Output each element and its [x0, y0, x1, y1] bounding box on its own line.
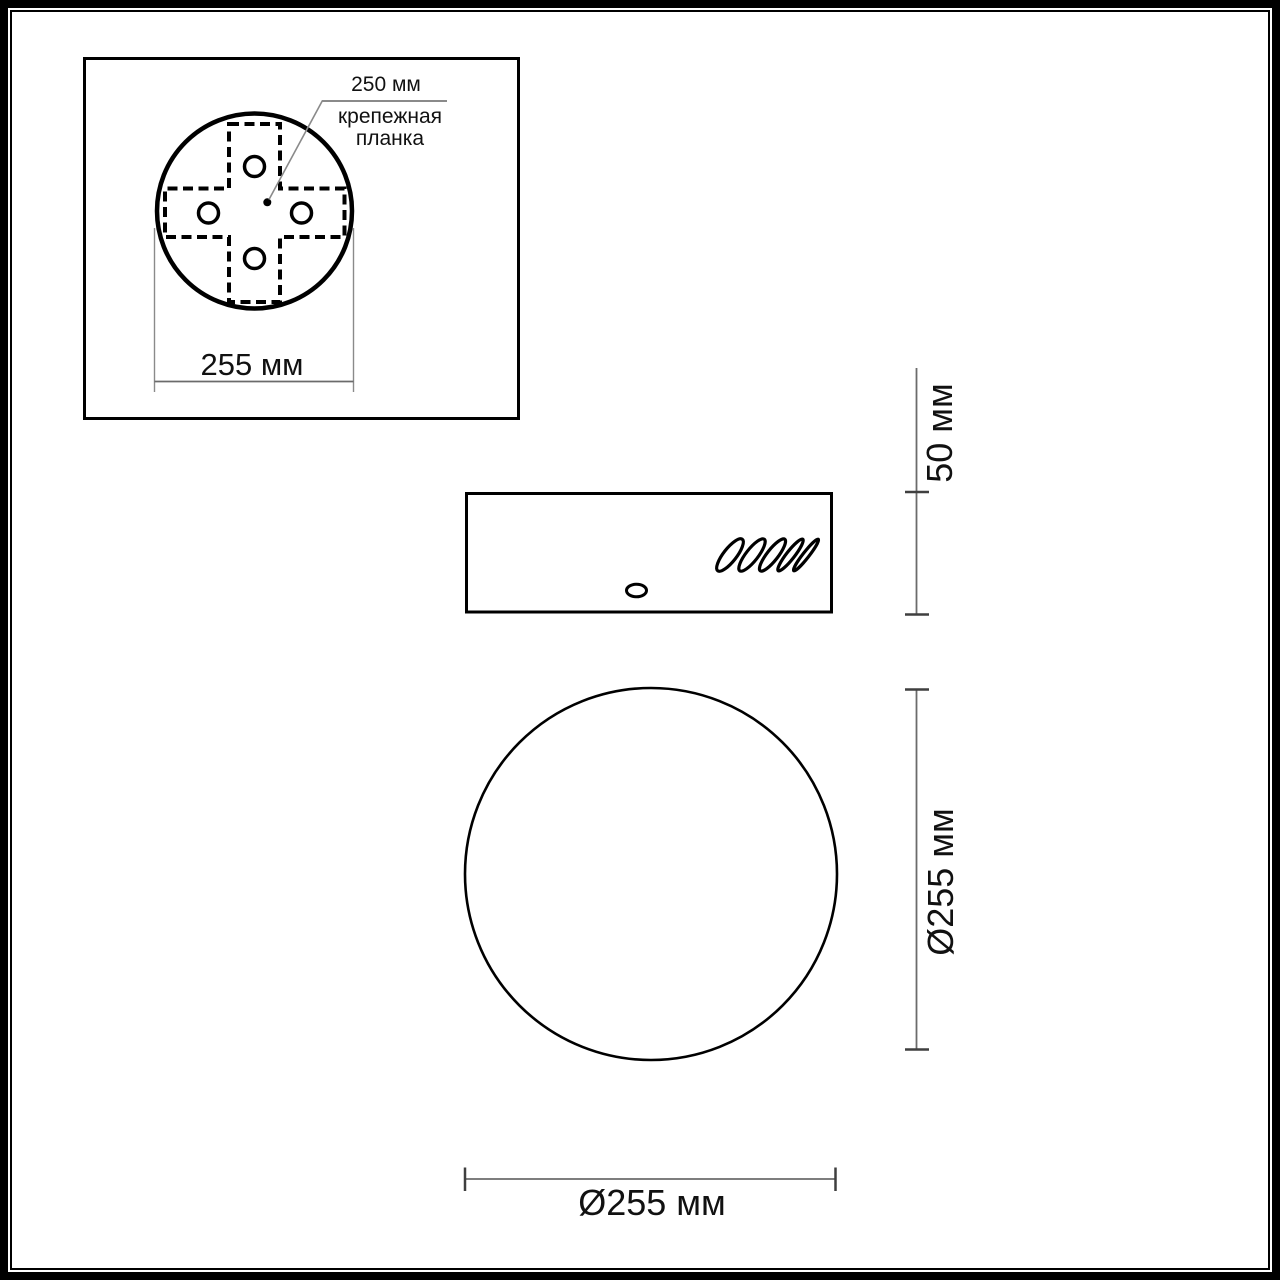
hole-pitch-label: 250 мм — [351, 74, 421, 96]
side-view-body — [467, 494, 832, 613]
detail-width-label: 255 мм — [201, 349, 304, 382]
technical-drawing-page: 250 мм крепежная планка 255 мм 50 мм Ø25… — [0, 0, 1280, 1280]
canopy-circle — [465, 688, 837, 1060]
front-view-group — [465, 688, 929, 1191]
diameter-label-horizontal: Ø255 мм — [578, 1184, 726, 1222]
bracket-label-line1: крепежная — [338, 106, 442, 128]
diameter-label-vertical: Ø255 мм — [922, 808, 960, 956]
center-point-dot — [263, 198, 271, 206]
side-height-label: 50 мм — [921, 383, 959, 483]
side-view-group — [467, 368, 930, 615]
bracket-label: крепежная планка — [338, 106, 442, 150]
drawing-canvas — [0, 0, 1280, 1280]
label-underline — [322, 100, 447, 102]
bracket-label-line2: планка — [338, 128, 442, 150]
